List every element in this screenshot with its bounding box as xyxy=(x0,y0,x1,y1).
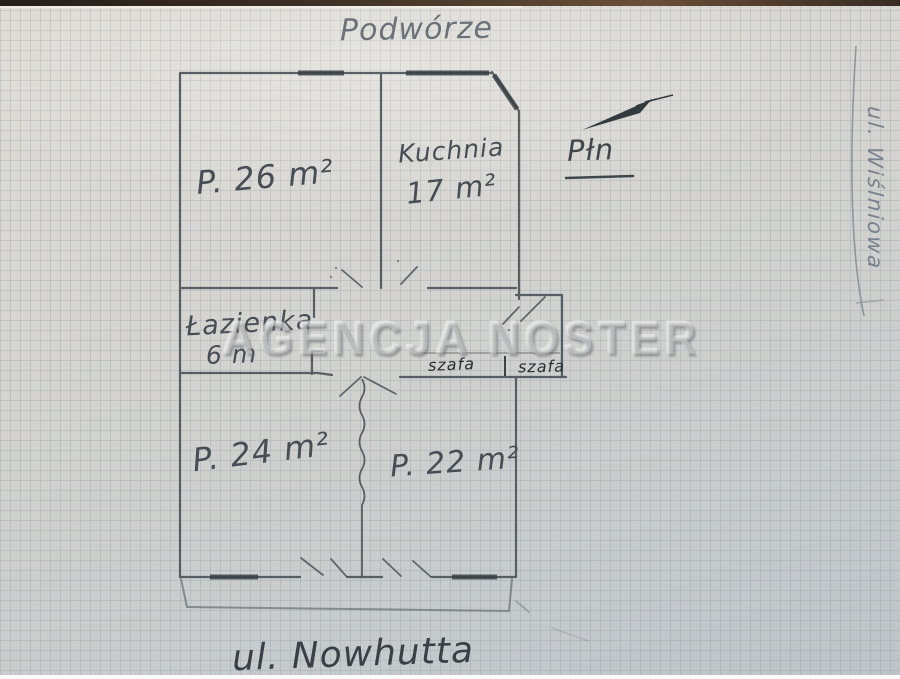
bottom-street-label: ul. Nowhutta xyxy=(231,630,474,679)
floor-plan-photo: { "scene": { "top_label": "Podwórze", "b… xyxy=(0,0,900,675)
side-street-label: ul. Wiślniowa xyxy=(857,52,887,324)
north-label: Płn xyxy=(566,132,614,168)
balcony-outline xyxy=(181,579,588,641)
north-arrow-icon xyxy=(582,95,673,130)
north-label-underline xyxy=(566,176,633,178)
courtyard-label: Podwórze xyxy=(340,11,494,49)
room-partition-wavy-line xyxy=(360,379,365,577)
agency-watermark: AGENCJA NOSTER xyxy=(222,312,701,366)
